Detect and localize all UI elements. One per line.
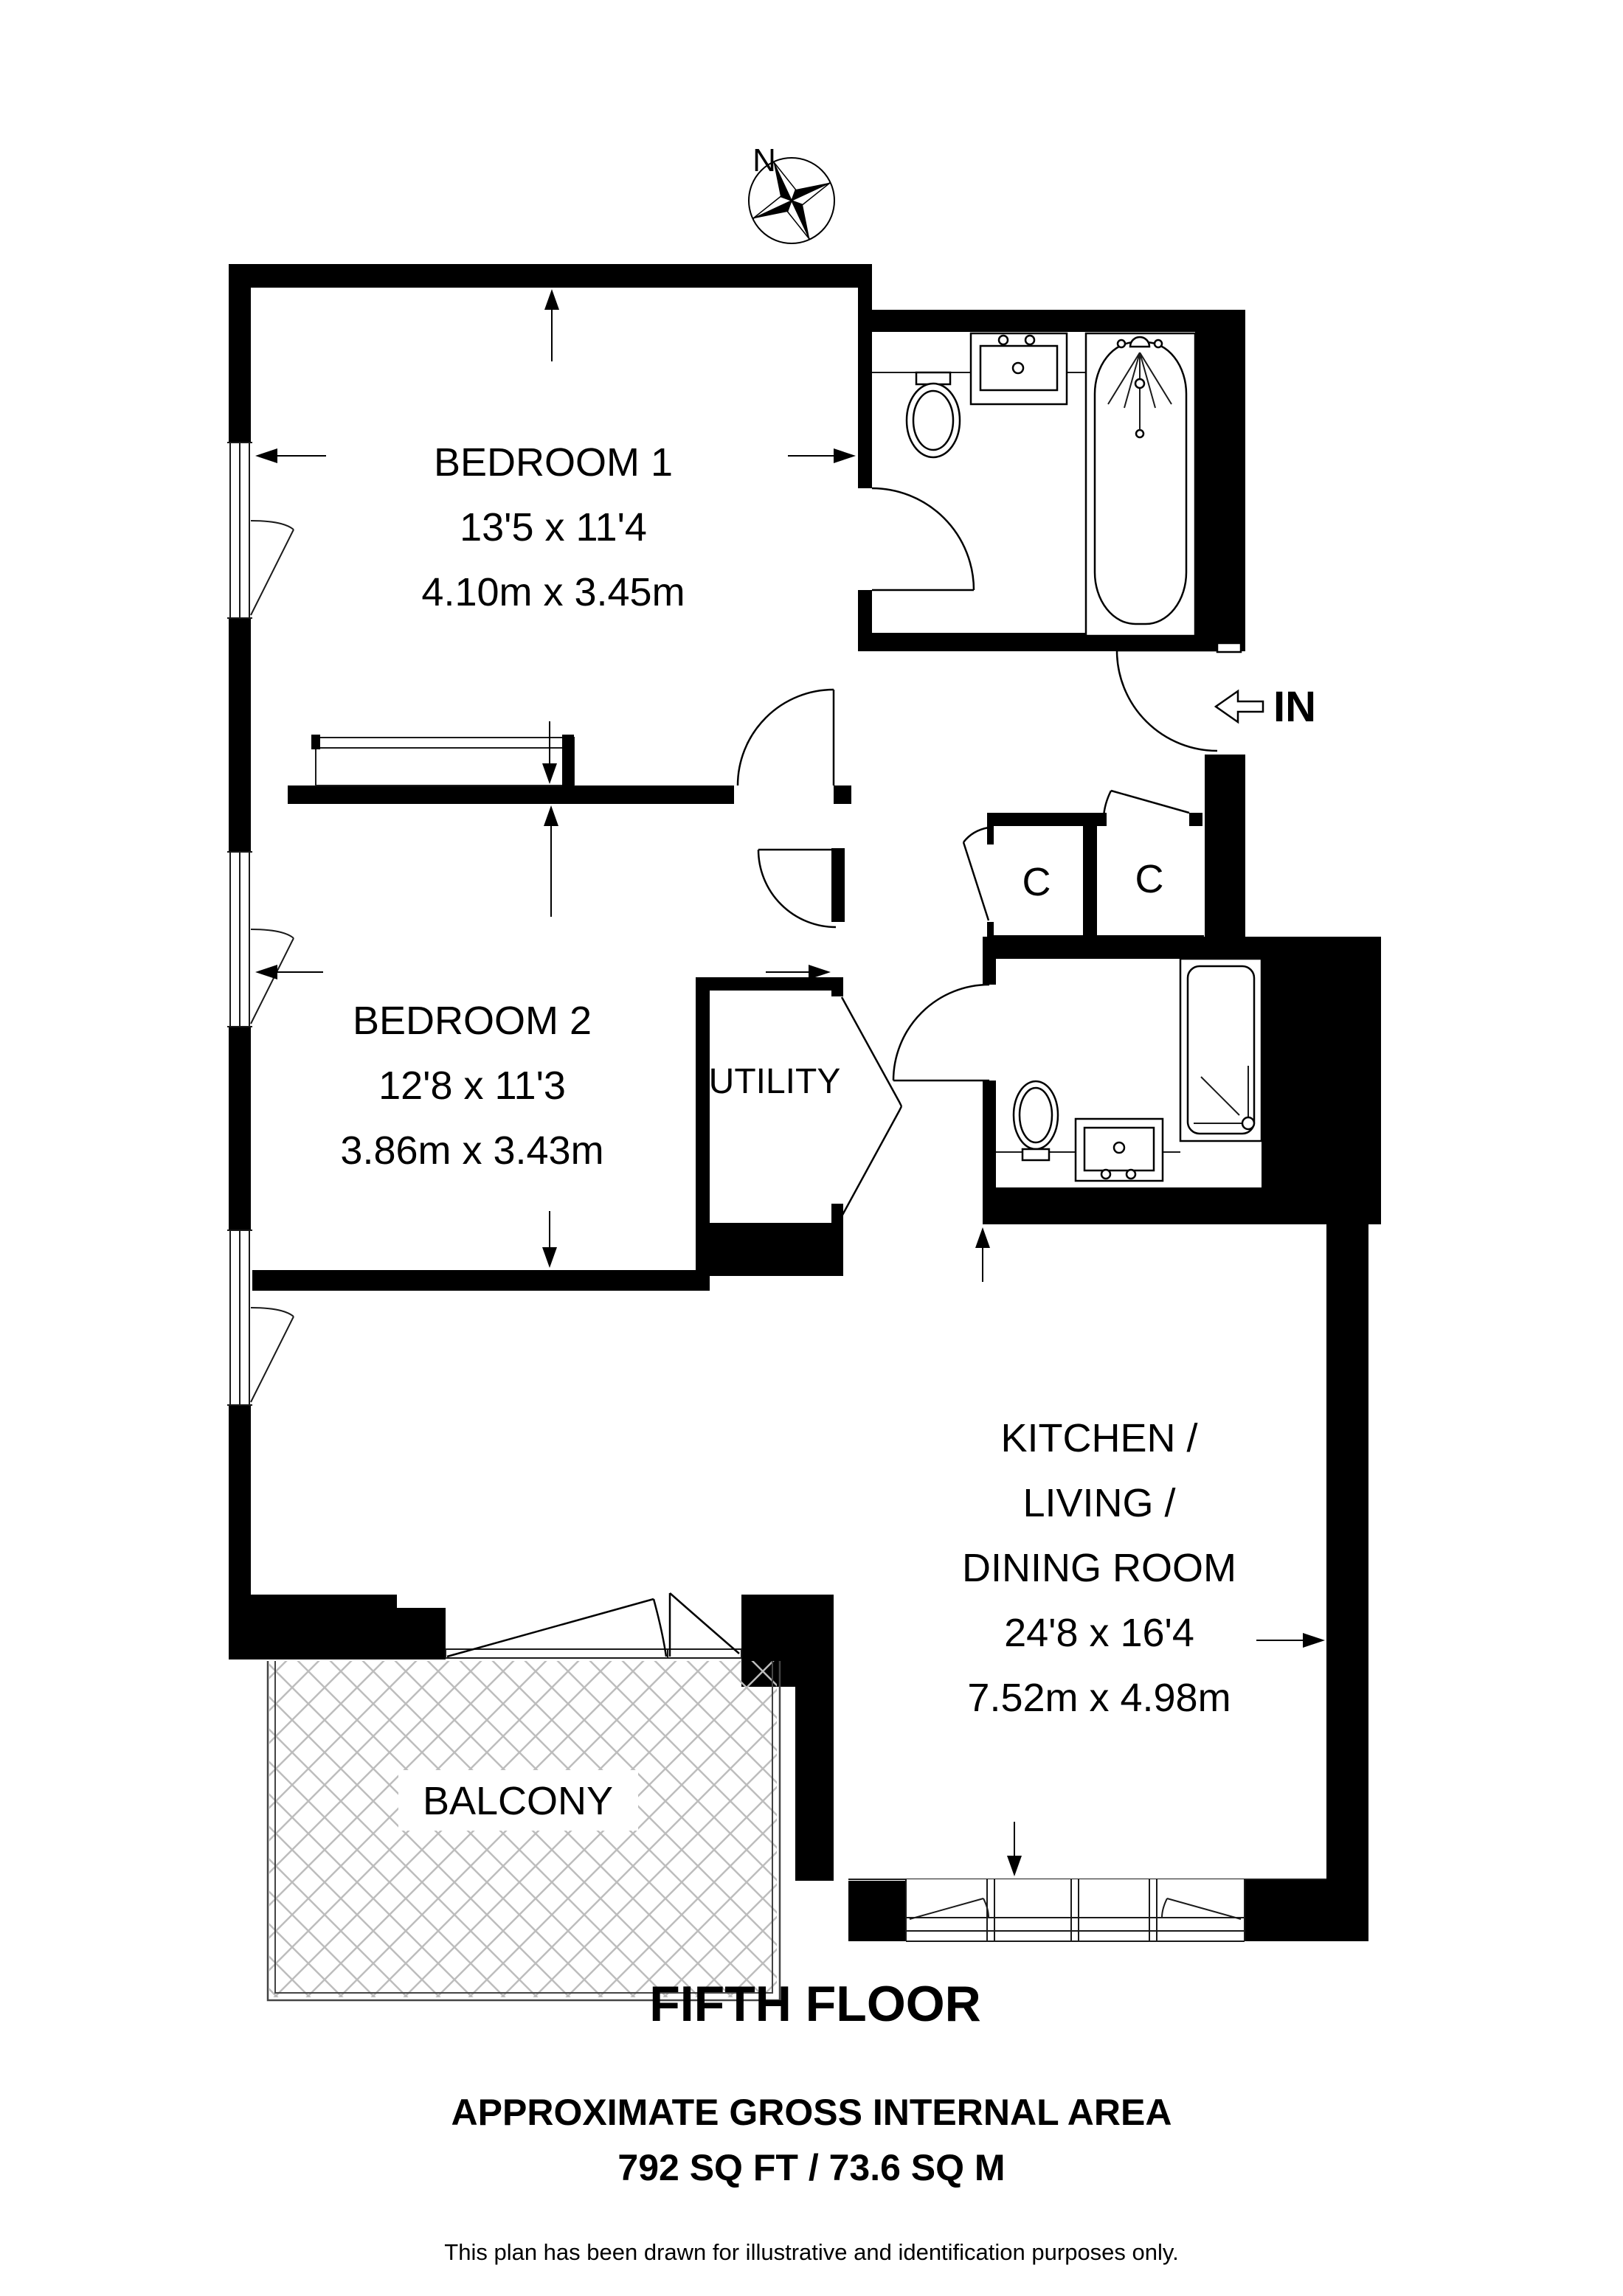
cupboard-left-label: C <box>1022 860 1051 904</box>
door-bedroom1 <box>738 690 834 785</box>
disclaimer: This plan has been drawn for illustrativ… <box>444 2239 1178 2265</box>
floorplan-drawing: N IN BEDROOM 1 13'5 x 11'4 4.10m x 3.45m… <box>0 0 1623 2296</box>
bathtub-icon <box>1086 333 1195 636</box>
sink-icon <box>971 333 1067 404</box>
shower-icon <box>1180 959 1262 1141</box>
bedroom2-label: BEDROOM 2 <box>353 999 592 1043</box>
window-bedroom1 <box>227 443 294 618</box>
door-cupboard-left <box>963 828 989 920</box>
wardrobe-bedroom1 <box>311 735 574 788</box>
bedroom2-dims-metric: 3.86m x 3.43m <box>340 1128 603 1173</box>
door-utility-bifold <box>842 997 902 1216</box>
kitchen-label-line2: LIVING / <box>1022 1481 1175 1525</box>
area-heading: APPROXIMATE GROSS INTERNAL AREA <box>451 2092 1172 2133</box>
kitchen-label-line3: DINING ROOM <box>962 1546 1236 1590</box>
door-cupboard-right <box>1104 791 1189 817</box>
toilet-icon <box>907 372 960 457</box>
bathroom2-fixtures <box>996 959 1262 1181</box>
window-living <box>227 1230 294 1405</box>
door-bedroom2 <box>758 850 836 927</box>
area-value: 792 SQ FT / 73.6 SQ M <box>617 2147 1005 2188</box>
kitchen-label-line1: KITCHEN / <box>1000 1416 1197 1460</box>
bedroom1-label: BEDROOM 1 <box>434 440 673 485</box>
entry-arrow-icon <box>1216 691 1263 722</box>
kitchen-dims-metric: 7.52m x 4.98m <box>967 1676 1231 1720</box>
compass-north-label: N <box>752 142 776 178</box>
door-entry <box>1117 643 1241 751</box>
floor-title: FIFTH FLOOR <box>649 1976 980 2032</box>
window-bedroom2 <box>227 852 294 1027</box>
bedroom1-dims-metric: 4.10m x 3.45m <box>421 570 685 614</box>
kitchen-dims-imperial: 24'8 x 16'4 <box>1004 1611 1194 1655</box>
utility-label: UTILITY <box>709 1062 841 1101</box>
door-bathroom2 <box>893 985 989 1081</box>
bedroom2-dims-imperial: 12'8 x 11'3 <box>378 1064 566 1108</box>
bedroom1-dims-imperial: 13'5 x 11'4 <box>460 505 647 549</box>
balcony-door <box>446 1593 741 1658</box>
toilet-icon <box>1014 1081 1058 1160</box>
door-bathroom1 <box>872 488 974 590</box>
floorplan-page: N IN BEDROOM 1 13'5 x 11'4 4.10m x 3.45m… <box>0 0 1623 2296</box>
sink-icon <box>1076 1119 1163 1181</box>
entry-label: IN <box>1273 683 1316 731</box>
balcony-label: BALCONY <box>423 1779 613 1823</box>
cupboard-right-label: C <box>1135 857 1164 901</box>
